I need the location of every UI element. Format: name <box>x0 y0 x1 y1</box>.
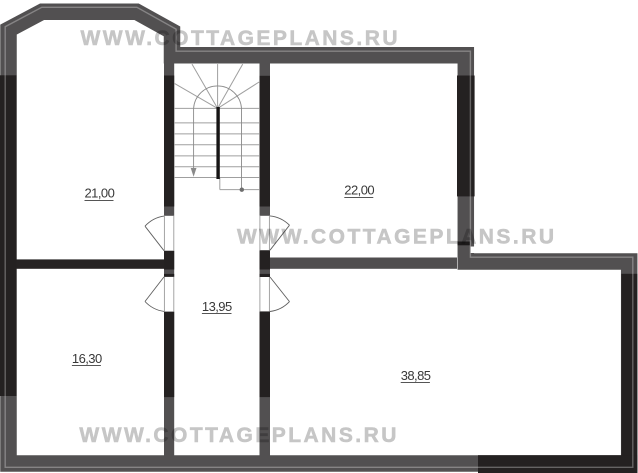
svg-text:21,00: 21,00 <box>85 186 115 201</box>
svg-text:WWW.COTTAGEPLANS.RU: WWW.COTTAGEPLANS.RU <box>81 27 398 50</box>
svg-text:22,00: 22,00 <box>344 183 374 198</box>
svg-text:WWW.COTTAGEPLANS.RU: WWW.COTTAGEPLANS.RU <box>237 226 554 249</box>
svg-text:13,95: 13,95 <box>202 299 232 314</box>
svg-text:WWW.COTTAGEPLANS.RU: WWW.COTTAGEPLANS.RU <box>79 424 396 447</box>
svg-text:38,85: 38,85 <box>401 368 431 383</box>
svg-text:16,30: 16,30 <box>72 351 102 366</box>
